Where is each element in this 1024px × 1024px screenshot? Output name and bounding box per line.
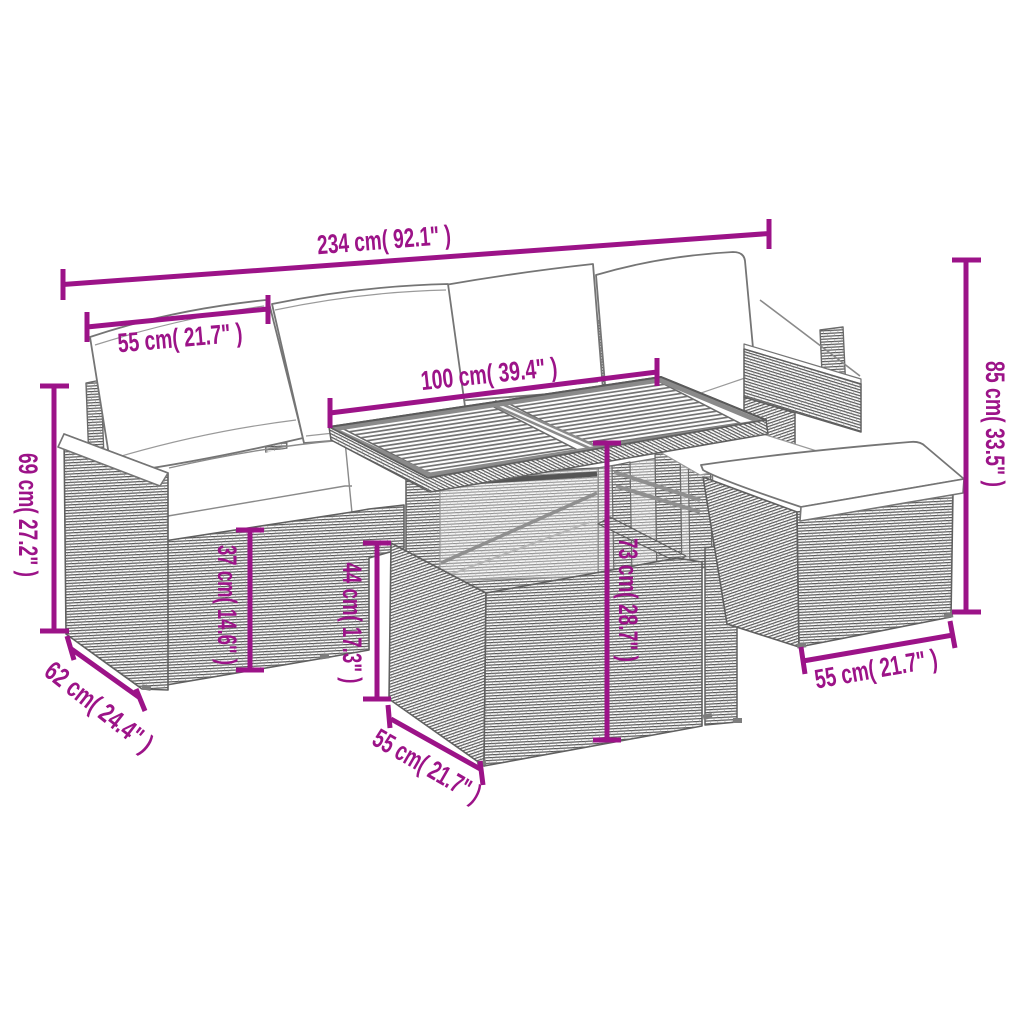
svg-text:44 cm( 17.3" ): 44 cm( 17.3" ) xyxy=(337,563,367,684)
svg-text:37 cm( 14.6" ): 37 cm( 14.6" ) xyxy=(212,545,242,665)
svg-text:69 cm( 27.2" ): 69 cm( 27.2" ) xyxy=(13,453,43,577)
svg-text:73 cm( 28.7" ): 73 cm( 28.7" ) xyxy=(613,538,643,662)
svg-text:85 cm( 33.5" ): 85 cm( 33.5" ) xyxy=(980,361,1010,487)
